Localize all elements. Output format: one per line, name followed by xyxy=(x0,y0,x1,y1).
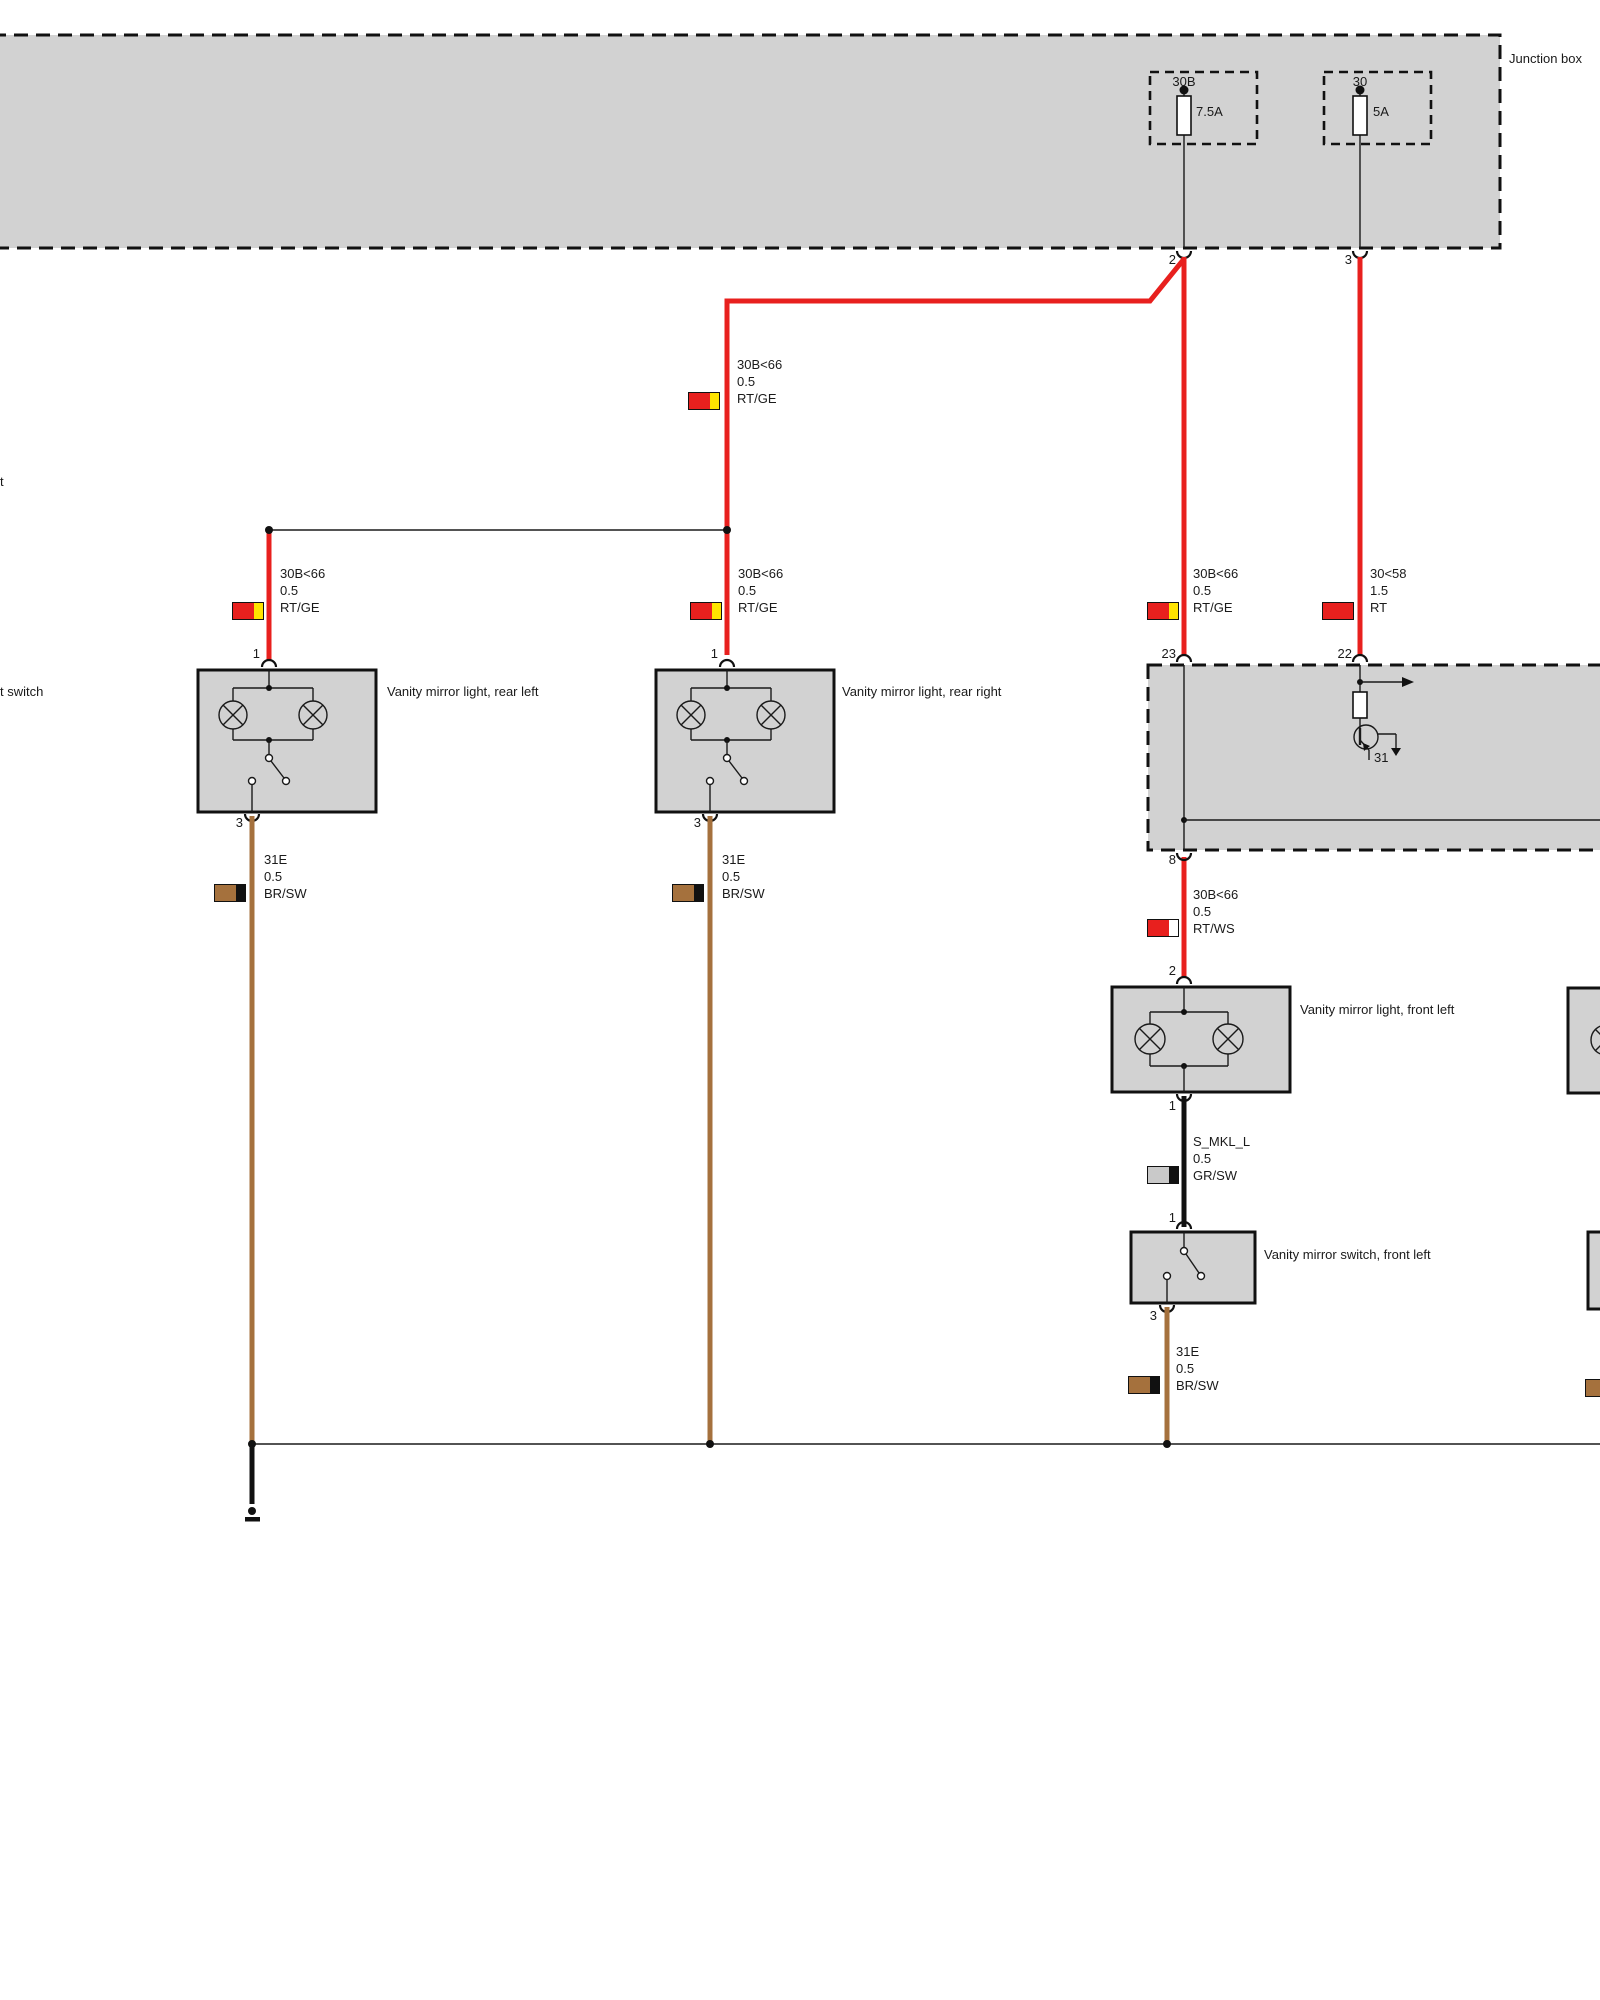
rear-left-light-box xyxy=(198,660,376,821)
module-pin-8-connector xyxy=(1177,853,1191,860)
module-pin-23-connector xyxy=(1177,655,1191,662)
ground-symbol-icon xyxy=(245,1446,260,1522)
wire-label-front-feed: 30B<660.5RT/WS xyxy=(1193,886,1238,937)
front-switch-pin-3: 3 xyxy=(1133,1308,1157,1323)
jb-pin-2-connector xyxy=(1177,251,1191,258)
wire-label-feed-top: 30B<660.5RT/GE xyxy=(737,356,782,407)
module-pin-23: 23 xyxy=(1150,646,1176,661)
resistor-icon xyxy=(1353,692,1367,718)
rear-left-pin-1: 1 xyxy=(236,646,260,661)
wire-swatch-rt-ge xyxy=(690,602,722,620)
wire-label-ground-rear-left: 31E0.5BR/SW xyxy=(264,851,307,902)
wire-swatch-gr-sw xyxy=(1147,1166,1179,1184)
jb-pin-3-connector xyxy=(1353,251,1367,258)
rear-right-light-label: Vanity mirror light, rear right xyxy=(842,684,1001,699)
jb-pin-3: 3 xyxy=(1328,252,1352,267)
wire-label-switch-signal: S_MKL_L0.5GR/SW xyxy=(1193,1133,1250,1184)
wiring-diagram-page: Junction box 30B 7.5A 30 5A 2 3 Vanity m… xyxy=(0,0,1600,2000)
front-right-light-box-clipped xyxy=(1568,988,1600,1093)
rear-right-pin-3: 3 xyxy=(677,815,701,830)
branch-line xyxy=(265,526,731,534)
fuse-30-rating: 5A xyxy=(1373,104,1389,119)
rear-right-pin-1: 1 xyxy=(694,646,718,661)
left-edge-clipped-text: t switch xyxy=(0,684,43,699)
front-light-pin-2: 2 xyxy=(1152,963,1176,978)
red-wires xyxy=(269,257,1360,977)
module-pin-8: 8 xyxy=(1152,852,1176,867)
module-ground-ref: 31 xyxy=(1374,750,1388,765)
wire-label-ground-front-left: 31E0.5BR/SW xyxy=(1176,1343,1219,1394)
junction-box-label: Junction box xyxy=(1509,51,1582,66)
wire-label-ground-rear-right: 31E0.5BR/SW xyxy=(722,851,765,902)
ground-bus xyxy=(245,1440,1600,1522)
ground-wires xyxy=(252,816,1167,1444)
front-left-switch-box xyxy=(1131,1222,1255,1312)
front-left-light-box xyxy=(1112,977,1290,1101)
wire-swatch-rt-ws xyxy=(1147,919,1179,937)
fuse-30b-rating: 7.5A xyxy=(1196,104,1223,119)
fuse-30b-id: 30B xyxy=(1163,74,1205,89)
rear-left-pin-3: 3 xyxy=(219,815,243,830)
wire-swatch-rt-ge xyxy=(232,602,264,620)
wire-swatch-br-sw xyxy=(1128,1376,1160,1394)
wire-swatch-br-sw xyxy=(214,884,246,902)
wiring-svg xyxy=(0,0,1600,2000)
wire-swatch-rt xyxy=(1322,602,1354,620)
front-left-light-label: Vanity mirror light, front left xyxy=(1300,1002,1454,1017)
wire-swatch-br-sw xyxy=(672,884,704,902)
module-pin-22-connector xyxy=(1353,655,1367,662)
wire-label-rear-left: 30B<660.5RT/GE xyxy=(280,565,325,616)
front-right-switch-box-clipped xyxy=(1588,1232,1600,1309)
wire-swatch-br-sw-clipped xyxy=(1585,1379,1600,1397)
left-edge-clipped-text: t xyxy=(0,474,4,489)
front-left-switch-label: Vanity mirror switch, front left xyxy=(1264,1247,1431,1262)
module-pin-22: 22 xyxy=(1326,646,1352,661)
wire-swatch-rt-ge xyxy=(1147,602,1179,620)
wire-label-rear-right: 30B<660.5RT/GE xyxy=(738,565,783,616)
jb-pin-2: 2 xyxy=(1152,252,1176,267)
front-light-pin-1: 1 xyxy=(1152,1098,1176,1113)
fuse-30-id: 30 xyxy=(1340,74,1380,89)
rear-left-light-label: Vanity mirror light, rear left xyxy=(387,684,538,699)
wire-label-module-23: 30B<660.5RT/GE xyxy=(1193,565,1238,616)
front-switch-pin-1: 1 xyxy=(1152,1210,1176,1225)
wire-swatch-rt-ge xyxy=(688,392,720,410)
wire-label-module-22: 30<581.5RT xyxy=(1370,565,1407,616)
junction-box xyxy=(0,35,1500,258)
rear-right-light-box xyxy=(656,660,834,821)
